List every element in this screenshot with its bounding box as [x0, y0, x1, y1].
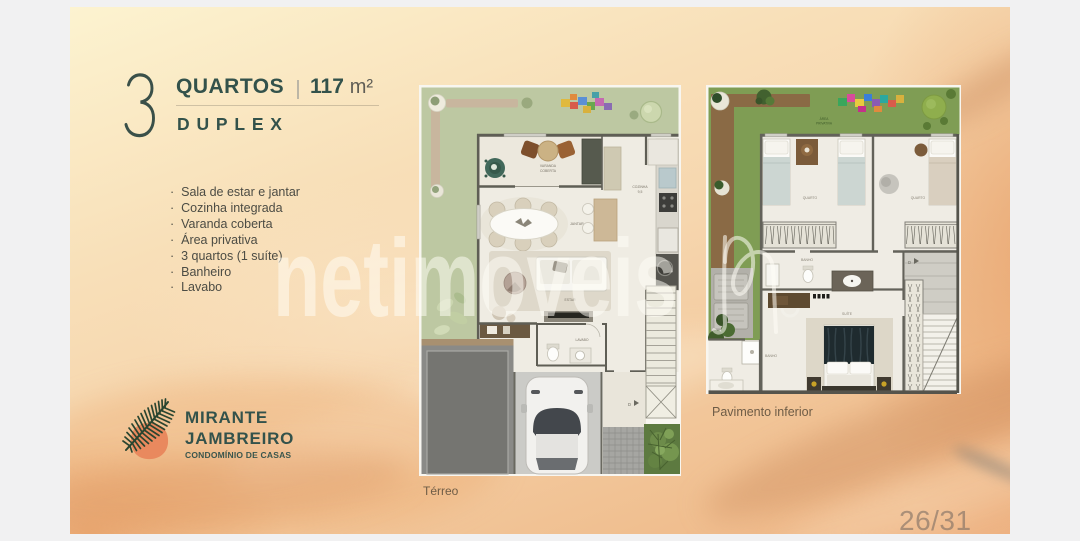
svg-text:COZINHA: COZINHA — [632, 185, 648, 189]
svg-text:PRIVATIVA: PRIVATIVA — [816, 122, 833, 126]
svg-text:COBERTA: COBERTA — [540, 169, 557, 173]
svg-text:D: D — [628, 402, 631, 407]
svg-text:SUÍTE: SUÍTE — [842, 312, 853, 316]
svg-text:BANHO: BANHO — [801, 258, 813, 262]
svg-text:D: D — [908, 260, 911, 265]
svg-text:netimoveis: netimoveis — [273, 230, 677, 340]
svg-text:QUARTO: QUARTO — [803, 196, 818, 200]
svg-text:ÁREA: ÁREA — [820, 117, 830, 121]
svg-text:JANTAR: JANTAR — [570, 222, 584, 226]
svg-text:VARANDA: VARANDA — [540, 164, 557, 168]
svg-text:9,5: 9,5 — [638, 190, 643, 194]
svg-text:BANHO: BANHO — [765, 354, 777, 358]
svg-text:QUARTO: QUARTO — [911, 196, 926, 200]
